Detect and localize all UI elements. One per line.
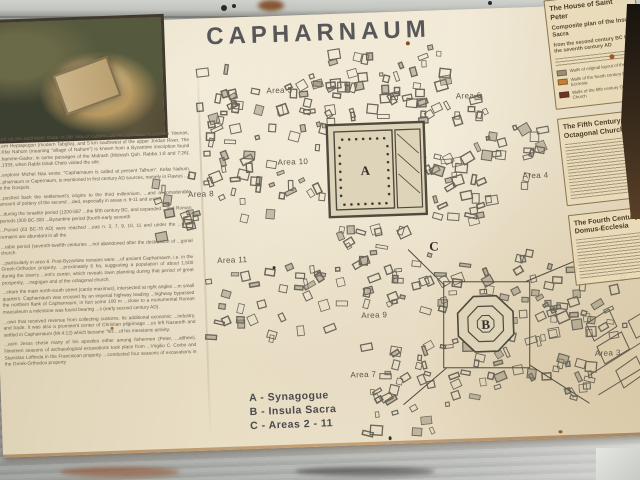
building-marker-A: A	[360, 163, 371, 178]
photo-of-information-panel: { "title": "CAPHARNAUM", "left_column": …	[0, 0, 640, 480]
legend-swatch	[556, 69, 567, 76]
metal-frame-corner	[596, 448, 640, 480]
area-label: Area 4	[522, 171, 548, 181]
frame-spot	[221, 5, 227, 11]
area-labels: Area 5Area 6Area 4Area 10Area 8Area 11Ar…	[184, 74, 621, 385]
area-label: Area 9	[361, 310, 387, 320]
illegible-text	[576, 230, 640, 279]
frame-spot	[232, 4, 236, 8]
area-label: Area 6	[456, 91, 482, 101]
map-key-item: C - Areas 2 - 11	[250, 416, 337, 433]
octagonal-church-plan	[398, 243, 589, 409]
building-marker-B: B	[481, 317, 491, 332]
sidebar-panel-domus-ecclesia: The Fourth Century Domus-Ecclesia	[568, 204, 640, 285]
synagogue-plan	[327, 122, 427, 217]
rust-speck	[111, 327, 114, 330]
rust-stain	[258, 0, 284, 11]
map-key: A - Synagogue B - Insula Sacra C - Areas…	[249, 388, 337, 434]
information-board: CAPHARNAUM ...ed on the northwest shore …	[0, 2, 640, 458]
area-label: Area 8	[188, 189, 214, 199]
area-label: Area 5	[266, 85, 292, 95]
rust-smear	[60, 467, 180, 477]
aerial-photo-synagogue-ruin	[52, 56, 121, 116]
dirt-speck	[389, 436, 392, 440]
building-marker-C: C	[429, 238, 439, 253]
legend-swatch	[559, 91, 570, 98]
area-label: Area 7	[350, 370, 376, 380]
frame-spot	[488, 1, 492, 5]
dirt-speck	[273, 266, 276, 269]
legend-swatch	[557, 78, 568, 85]
area-label: Area 10	[277, 157, 308, 167]
dark-smear	[295, 467, 435, 476]
area-label: Area 11	[217, 255, 248, 265]
